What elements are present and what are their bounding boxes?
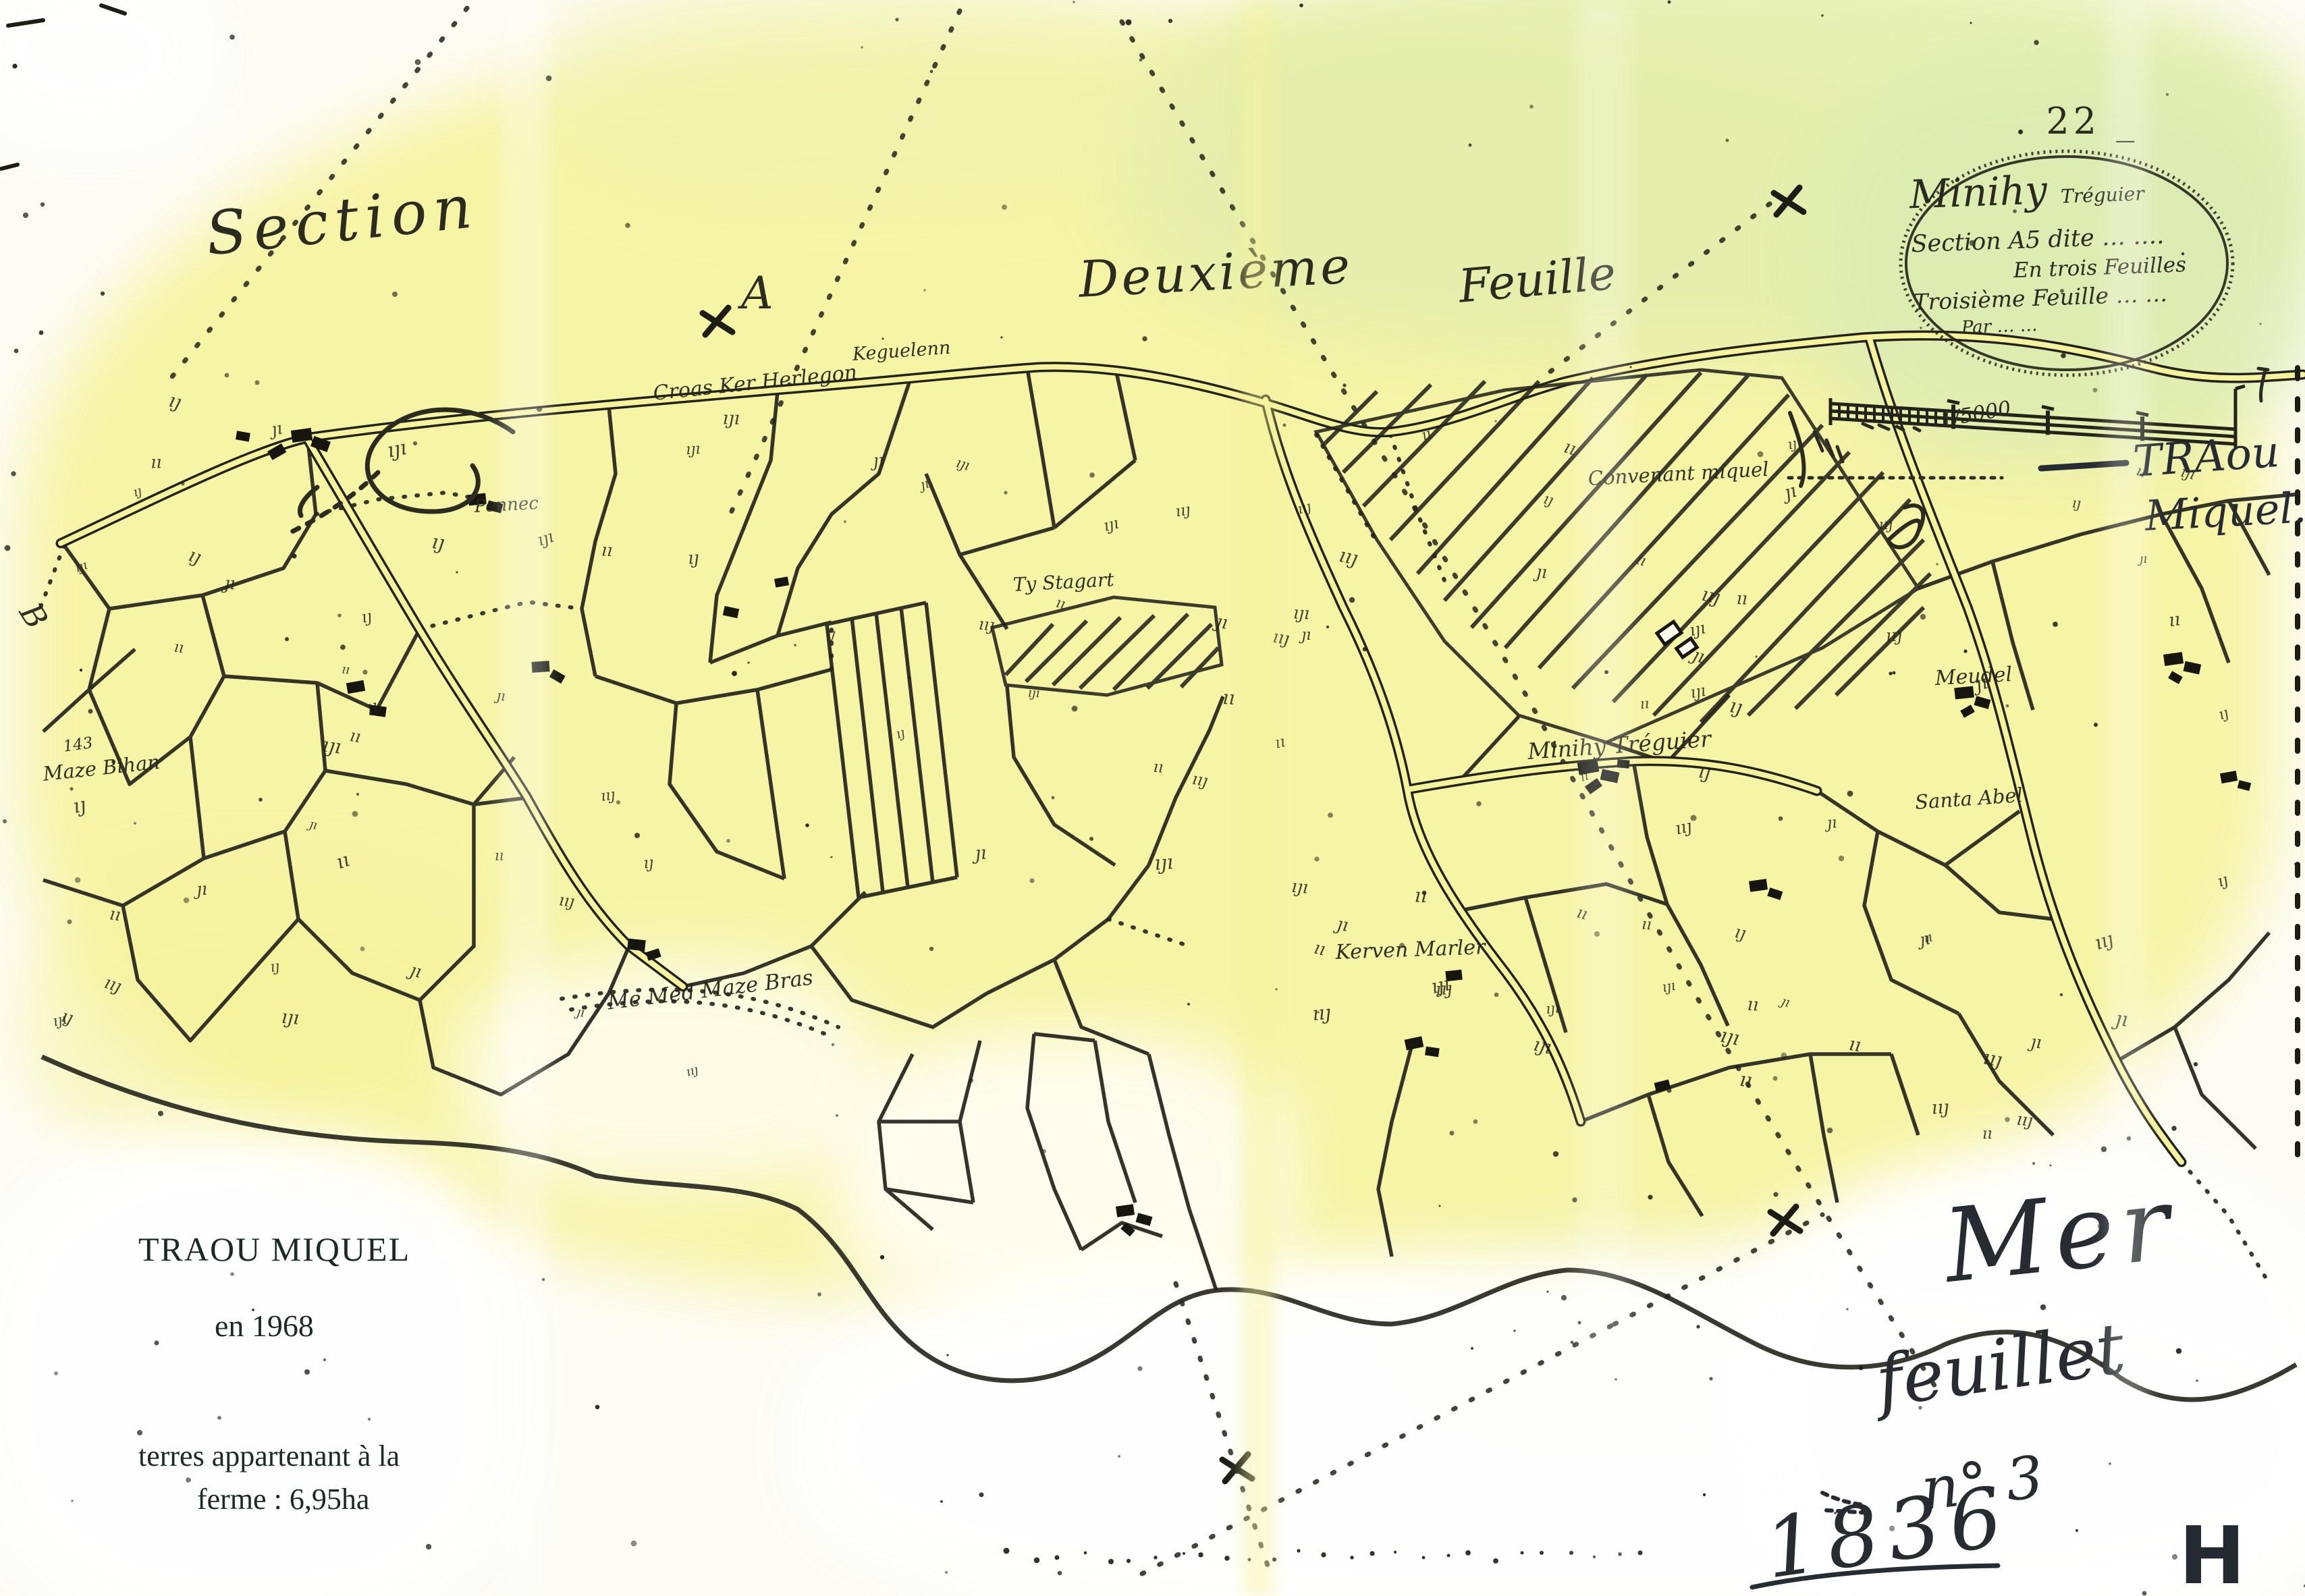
svg-text:ıȷı: ıȷı <box>1027 686 1040 700</box>
svg-text:ııȷ: ııȷ <box>1673 816 1693 839</box>
svg-text:ıȷı: ıȷı <box>685 440 701 458</box>
svg-text:ıȷ: ıȷ <box>2215 871 2230 891</box>
svg-text:ȷı: ȷı <box>1777 993 1792 1011</box>
svg-text:ııȷ: ııȷ <box>1885 624 1903 645</box>
parcel-boundaries <box>43 366 2300 1290</box>
svg-text:ıȷı: ıȷı <box>535 526 555 550</box>
svg-text:ıȷı: ıȷı <box>1687 617 1707 640</box>
svg-text:ıı: ıı <box>333 848 352 873</box>
svg-text:ıı: ıı <box>494 847 504 863</box>
svg-text:ııȷ: ııȷ <box>558 890 575 911</box>
svg-text:ıı: ıı <box>1739 1068 1754 1092</box>
svg-text:ııȷ: ııȷ <box>102 972 124 997</box>
svg-text:ıı: ıı <box>601 539 614 560</box>
parcel-number-marks: ıȷıȷııȷııııȷıııȷııȷııȷııııııȷııȷȷııȷıııȷ… <box>51 389 2231 1143</box>
svg-text:ȷı: ȷı <box>2137 552 2147 566</box>
svg-text:ıȷ: ıȷ <box>269 958 281 976</box>
svg-text:ıȷ: ıȷ <box>1733 922 1748 943</box>
cartouche-commune-suffix: Tréguier <box>2061 182 2145 207</box>
svg-text:ıȷı: ıȷı <box>321 733 343 759</box>
svg-text:ıȷı: ıȷı <box>1718 1024 1742 1050</box>
svg-text:ıı: ıı <box>2167 609 2181 631</box>
svg-text:ıȷ: ıȷ <box>1728 694 1745 719</box>
cartouche: MinihyTréguier Section A5 dite … …. En t… <box>1909 161 2238 340</box>
svg-text:ıȷı: ıȷı <box>281 1006 300 1029</box>
svg-text:ıȷ: ıȷ <box>894 725 906 742</box>
svg-text:ıı: ıı <box>1222 686 1236 709</box>
svg-text:ııȷ: ııȷ <box>1435 979 1453 1000</box>
svg-text:ıı: ıı <box>173 638 184 657</box>
svg-text:ıȷı: ıȷı <box>385 436 409 463</box>
caption-note-line2: ferme : 6,95ha <box>197 1482 369 1516</box>
map-label-meudel: Meudel <box>1934 663 2013 690</box>
scanned-cadastral-map-sheet: ıȷıȷııȷııııȷıııȷııȷııȷııııııȷııȷȷııȷıııȷ… <box>0 0 2305 1596</box>
svg-text:ȷı: ȷı <box>266 418 283 440</box>
svg-text:ııȷ: ııȷ <box>1191 769 1209 791</box>
svg-text:ȷı: ȷı <box>306 817 319 833</box>
svg-text:ıı: ıı <box>341 662 350 677</box>
sheet-number: . 22 _ <box>2015 100 2138 142</box>
svg-text:ıı: ıı <box>1634 551 1648 570</box>
svg-text:ȷı: ȷı <box>1299 626 1311 644</box>
pen-dash-before-traou <box>2041 463 2126 468</box>
svg-text:ıı: ıı <box>1153 758 1164 777</box>
svg-text:ıȷ: ıȷ <box>59 1006 76 1028</box>
svg-text:ȷı: ȷı <box>1823 813 1837 833</box>
svg-text:ȷı: ȷı <box>192 879 208 900</box>
svg-text:ȷı: ȷı <box>1779 479 1799 505</box>
map-label-pennec: Pennec <box>474 493 539 517</box>
traou-annotation-line1: TRAou <box>2132 427 2281 487</box>
svg-text:ȷı: ȷı <box>221 574 236 595</box>
svg-text:ııȷ: ııȷ <box>1982 1045 2004 1071</box>
svg-text:ıȷı: ıȷı <box>954 454 972 474</box>
svg-text:ıȷı: ıȷı <box>722 408 740 429</box>
svg-text:ııȷ: ııȷ <box>1931 1097 1949 1118</box>
svg-text:ıȷ: ıȷ <box>2071 495 2082 512</box>
svg-text:ııȷ: ııȷ <box>1272 627 1291 649</box>
svg-text:ıı: ıı <box>1414 883 1428 907</box>
svg-text:ıȷı: ıȷı <box>1545 999 1560 1017</box>
svg-text:ȷı: ȷı <box>405 960 424 983</box>
svg-text:ııȷ: ııȷ <box>1700 583 1723 609</box>
svg-text:ıȷ: ıȷ <box>431 530 446 554</box>
caption-title: TRAOU MIQUEL <box>138 1230 410 1269</box>
mer-script: Mer <box>1938 1165 2181 1306</box>
cartouche-commune-name: Minihy <box>1909 167 2048 217</box>
hatched-parcel-small <box>992 597 1222 695</box>
svg-text:ıı: ıı <box>1982 1124 1992 1143</box>
svg-text:ıı: ıı <box>1747 995 1759 1016</box>
svg-text:ıȷ: ıȷ <box>2217 705 2231 723</box>
svg-text:ııȷ: ııȷ <box>1174 501 1192 520</box>
svg-text:ıȷ: ıȷ <box>132 483 144 499</box>
corner-letter: H <box>2179 1509 2246 1596</box>
svg-text:ıȷ: ıȷ <box>1697 760 1712 783</box>
svg-text:ȷı: ȷı <box>971 843 987 864</box>
svg-text:ıȷı: ıȷı <box>73 557 89 576</box>
caption-date: en 1968 <box>215 1308 314 1344</box>
svg-text:ıȷı: ıȷı <box>1293 603 1309 623</box>
svg-text:ȷı: ȷı <box>1332 913 1350 936</box>
svg-text:ıȷ: ıȷ <box>186 543 204 568</box>
svg-text:ȷı: ȷı <box>493 687 506 704</box>
svg-text:ııȷ: ııȷ <box>2092 927 2116 954</box>
svg-text:ııȷ: ııȷ <box>978 614 996 635</box>
svg-text:ııȷ: ııȷ <box>1878 516 1893 534</box>
svg-text:ıı: ıı <box>364 696 380 717</box>
svg-text:ıȷı: ıȷı <box>1661 977 1677 995</box>
svg-text:ııȷ: ııȷ <box>2015 1109 2034 1130</box>
traou-annotation-line2: Miquel. <box>2144 483 2305 540</box>
svg-text:ıȷ: ıȷ <box>826 625 836 642</box>
svg-text:ȷı: ȷı <box>1532 562 1548 583</box>
svg-text:ıı: ıı <box>1639 695 1650 712</box>
svg-text:ȷı: ȷı <box>2026 1032 2042 1053</box>
svg-text:ıı: ıı <box>348 725 362 746</box>
svg-text:ıȷ: ıȷ <box>687 548 699 569</box>
svg-text:ıȷı: ıȷı <box>1154 850 1174 875</box>
svg-text:ıȷ: ıȷ <box>167 389 184 413</box>
svg-text:ıȷı: ıȷı <box>1102 514 1120 535</box>
svg-text:ȷı: ȷı <box>1211 611 1229 634</box>
svg-text:ıȷ: ıȷ <box>1542 491 1556 510</box>
svg-text:ıȷı: ıȷı <box>1291 877 1309 898</box>
svg-text:ıı: ıı <box>1274 733 1287 752</box>
svg-text:ıı: ıı <box>1736 588 1747 609</box>
svg-text:ıı: ıı <box>151 452 162 472</box>
svg-text:ıȷ: ıȷ <box>360 607 373 627</box>
svg-text:ıı: ıı <box>1575 903 1590 924</box>
svg-text:ııȷ: ııȷ <box>600 786 616 804</box>
svg-text:ıı: ıı <box>1641 915 1652 933</box>
svg-text:ȷı: ȷı <box>869 450 884 471</box>
svg-text:ȷı: ȷı <box>2111 1007 2129 1032</box>
svg-text:ıȷı: ıȷı <box>1689 681 1707 703</box>
svg-text:ııȷ: ııȷ <box>684 1063 700 1080</box>
section-letter: A <box>741 267 774 319</box>
svg-text:ıı: ıı <box>1312 938 1328 960</box>
caption-note-line1: terres appartenant à la <box>138 1439 400 1473</box>
svg-text:ııȷ: ııȷ <box>1311 1001 1332 1025</box>
svg-text:ıȷ: ıȷ <box>643 854 653 873</box>
svg-text:ıȷ: ıȷ <box>71 793 88 818</box>
svg-text:ıı: ıı <box>108 904 121 925</box>
svg-text:ȷı: ȷı <box>573 1005 586 1020</box>
svg-text:ııȷ: ııȷ <box>1337 543 1360 570</box>
